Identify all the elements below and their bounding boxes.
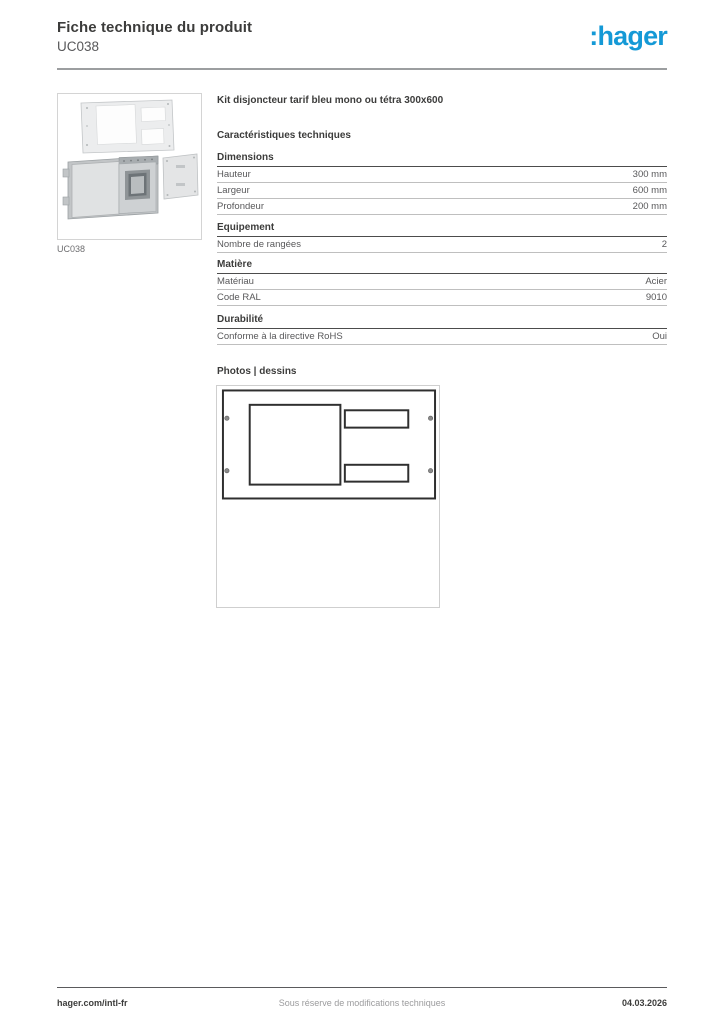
product-photo xyxy=(57,93,202,240)
table-row: Nombre de rangées 2 xyxy=(217,237,667,253)
product-reference: UC038 xyxy=(57,39,99,54)
row-value: Acier xyxy=(645,276,667,287)
hager-logo: :hager xyxy=(589,21,667,52)
footer-date: 04.03.2026 xyxy=(622,998,667,1008)
characteristics-title: Caractéristiques techniques xyxy=(217,130,667,141)
table-row: Conforme à la directive RoHS Oui xyxy=(217,329,667,345)
row-label: Conforme à la directive RoHS xyxy=(217,331,343,342)
section-matiere: Matière Matériau Acier Code RAL 9010 xyxy=(217,259,667,306)
row-value: 300 mm xyxy=(633,169,667,180)
row-value: 2 xyxy=(662,239,667,250)
technical-drawing xyxy=(216,385,440,608)
technical-drawing-illustration xyxy=(217,386,439,607)
section-title: Durabilité xyxy=(217,314,667,329)
table-row: Largeur 600 mm xyxy=(217,183,667,199)
row-label: Profondeur xyxy=(217,201,264,212)
row-value: Oui xyxy=(652,331,667,342)
photos-dessins-title: Photos | dessins xyxy=(217,366,296,377)
product-name: Kit disjoncteur tarif bleu mono ou tétra… xyxy=(217,95,667,106)
section-equipement: Equipement Nombre de rangées 2 xyxy=(217,222,667,253)
section-durabilite: Durabilité Conforme à la directive RoHS … xyxy=(217,314,667,345)
document-title: Fiche technique du produit xyxy=(57,19,252,36)
row-value: 9010 xyxy=(646,292,667,303)
footer-disclaimer: Sous réserve de modifications techniques xyxy=(100,998,624,1008)
row-label: Largeur xyxy=(217,185,250,196)
section-title: Equipement xyxy=(217,222,667,237)
row-label: Code RAL xyxy=(217,292,261,303)
row-value: 600 mm xyxy=(633,185,667,196)
product-photo-illustration xyxy=(58,94,201,239)
table-row: Hauteur 300 mm xyxy=(217,167,667,183)
table-row: Profondeur 200 mm xyxy=(217,199,667,215)
product-photo-caption: UC038 xyxy=(57,244,85,254)
footer-divider xyxy=(57,987,667,988)
row-label: Nombre de rangées xyxy=(217,239,301,250)
row-label: Hauteur xyxy=(217,169,251,180)
section-title: Dimensions xyxy=(217,152,667,167)
section-title: Matière xyxy=(217,259,667,274)
header-divider xyxy=(57,68,667,70)
section-dimensions: Dimensions Hauteur 300 mm Largeur 600 mm… xyxy=(217,152,667,215)
datasheet-page: Fiche technique du produit UC038 :hager xyxy=(0,0,724,1024)
row-value: 200 mm xyxy=(633,201,667,212)
table-row: Code RAL 9010 xyxy=(217,290,667,306)
row-label: Matériau xyxy=(217,276,254,287)
table-row: Matériau Acier xyxy=(217,274,667,290)
